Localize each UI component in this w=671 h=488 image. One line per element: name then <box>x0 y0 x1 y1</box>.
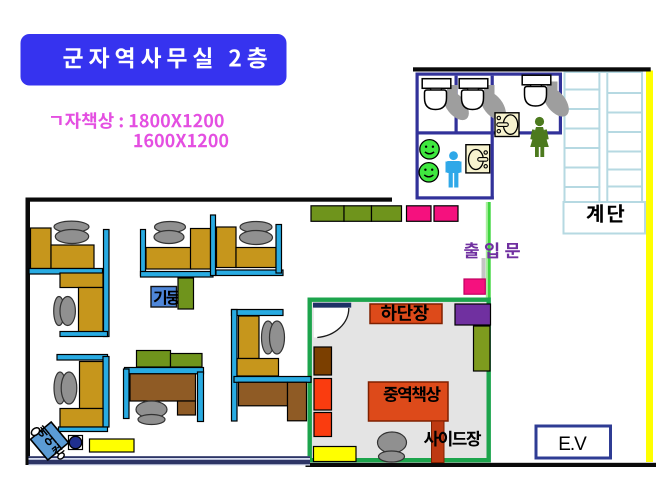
svg-text:E.V: E.V <box>558 434 587 455</box>
